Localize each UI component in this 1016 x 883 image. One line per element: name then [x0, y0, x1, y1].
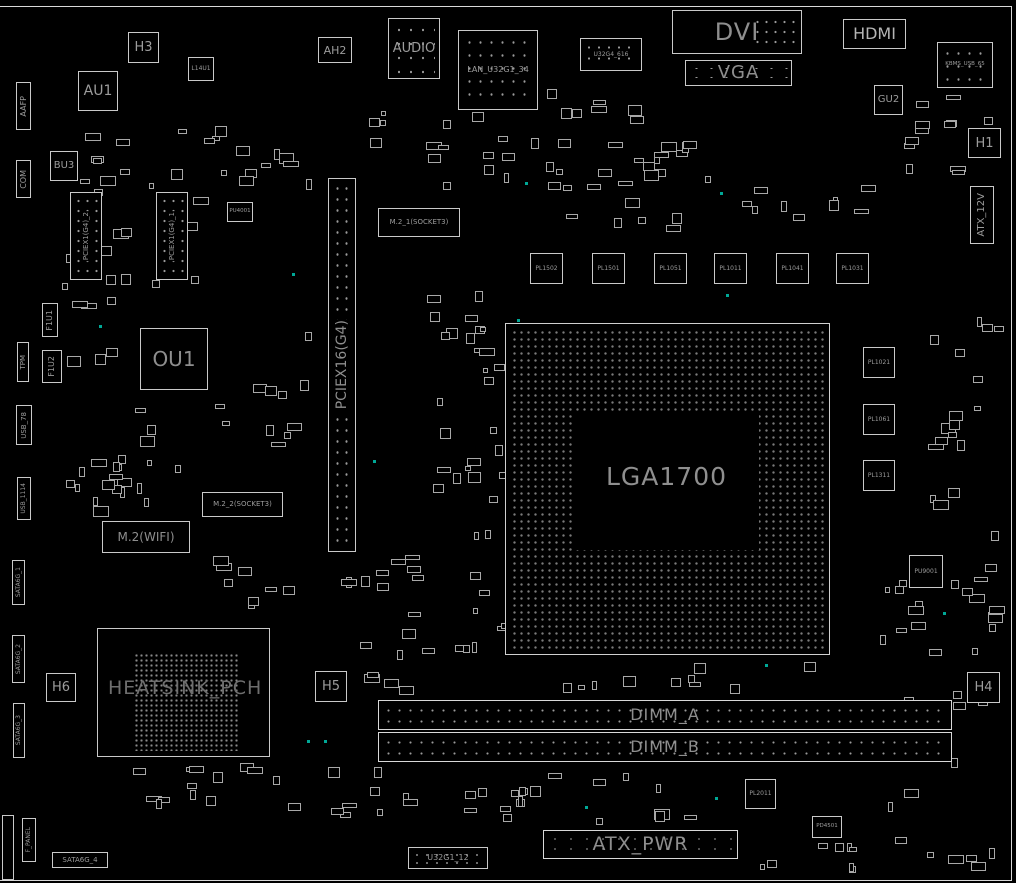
- chip-pu9001: PU9001: [909, 555, 943, 588]
- passive-component: [948, 488, 960, 498]
- board-edge-top: [0, 6, 1011, 7]
- passive-component: [730, 684, 740, 694]
- passive-component: [955, 349, 965, 357]
- passive-component: [672, 213, 682, 224]
- dvi-connector: DVI: [672, 10, 802, 54]
- passive-component: [479, 590, 490, 596]
- passive-component: [908, 606, 924, 615]
- test-point: [726, 294, 729, 297]
- passive-component: [306, 179, 312, 190]
- passive-component: [213, 556, 229, 566]
- atx-12v-connector: ATX_12V: [970, 186, 994, 244]
- m2-slot-2: M.2_2(SOCKET3): [202, 492, 283, 517]
- passive-component: [957, 440, 965, 451]
- usb-78-header: USB_78: [16, 405, 32, 445]
- chip-ah2: AH2: [318, 37, 352, 63]
- passive-component: [895, 586, 904, 594]
- passive-component: [407, 566, 421, 573]
- passive-component: [466, 333, 475, 344]
- passive-component: [930, 335, 939, 345]
- passive-component: [683, 141, 697, 149]
- passive-component: [767, 860, 777, 868]
- passive-component: [472, 112, 484, 122]
- passive-component: [405, 555, 420, 560]
- passive-component: [101, 246, 112, 256]
- passive-component: [623, 676, 636, 687]
- passive-component: [991, 531, 999, 541]
- passive-component: [465, 791, 476, 799]
- passive-component: [206, 796, 216, 806]
- passive-component: [994, 326, 1004, 332]
- passive-component: [973, 376, 983, 383]
- passive-component: [944, 121, 956, 128]
- passive-component: [152, 280, 160, 288]
- usb-1114-header: USB_1114: [17, 477, 31, 520]
- chip-pd4501: PD4501: [812, 816, 842, 838]
- motherboard-boardview-diagram: AUDIO LAN_U32G1_34 U32G4_616 DVI VGA HDM…: [0, 0, 1016, 883]
- passive-component: [530, 786, 541, 797]
- inductor-pl1041: PL1041: [776, 253, 809, 284]
- passive-component: [927, 852, 934, 858]
- passive-component: [463, 645, 470, 653]
- passive-component: [266, 425, 274, 436]
- passive-component: [287, 423, 302, 431]
- cpu-socket-label: LGA1700: [606, 464, 727, 489]
- passive-component: [149, 183, 154, 189]
- passive-component: [221, 170, 227, 176]
- board-edge-right: [1011, 6, 1012, 881]
- passive-component: [213, 772, 223, 783]
- passive-component: [72, 301, 88, 308]
- passive-component: [625, 198, 640, 208]
- passive-component: [494, 364, 505, 371]
- passive-component: [367, 672, 379, 678]
- passive-component: [204, 138, 215, 144]
- passive-component: [896, 628, 907, 633]
- passive-component: [474, 532, 479, 540]
- passive-component: [618, 181, 633, 186]
- board-edge-bottom: [0, 880, 1012, 881]
- passive-component: [376, 570, 389, 576]
- passive-component: [464, 808, 477, 813]
- passive-component: [503, 814, 512, 822]
- pch-heatsink: HEATSINK_PCH: [97, 628, 270, 757]
- inductor-pl1502: PL1502: [530, 253, 563, 284]
- passive-component: [361, 576, 370, 587]
- passive-component: [502, 153, 515, 161]
- passive-component: [397, 650, 403, 660]
- passive-component: [781, 201, 787, 212]
- passive-component: [666, 225, 681, 232]
- passive-component: [438, 145, 449, 150]
- passive-component: [656, 784, 661, 793]
- passive-component: [946, 95, 961, 100]
- test-point: [517, 319, 520, 322]
- passive-component: [484, 377, 494, 385]
- m2-slot-1: M.2_1(SOCKET3): [378, 208, 460, 237]
- passive-component: [661, 142, 677, 152]
- passive-component: [572, 109, 582, 118]
- passive-component: [951, 580, 959, 589]
- inductor-pl1311: PL1311: [863, 460, 895, 491]
- passive-component: [974, 577, 988, 582]
- passive-component: [470, 572, 481, 580]
- test-point: [585, 806, 588, 809]
- usb-header-top: U32G4_616: [580, 38, 642, 71]
- passive-component: [916, 101, 929, 108]
- passive-component: [222, 421, 230, 426]
- passive-component: [490, 427, 497, 434]
- passive-component: [949, 420, 960, 430]
- passive-component: [548, 182, 561, 190]
- passive-component: [818, 843, 828, 849]
- passive-component: [563, 185, 572, 191]
- test-point: [373, 460, 376, 463]
- passive-component: [412, 575, 424, 581]
- passive-component: [399, 686, 414, 695]
- passive-component: [171, 169, 183, 180]
- passive-component: [453, 473, 461, 484]
- chip-h3: H3: [128, 32, 159, 63]
- passive-component: [495, 445, 503, 456]
- passive-component: [441, 332, 450, 340]
- passive-component: [116, 139, 130, 146]
- inductor-pl1051: PL1051: [654, 253, 687, 284]
- passive-component: [215, 126, 227, 137]
- passive-component: [265, 386, 277, 396]
- passive-component: [982, 324, 993, 332]
- passive-component: [93, 158, 102, 164]
- passive-component: [689, 682, 701, 687]
- passive-component: [556, 169, 563, 175]
- passive-component: [804, 662, 816, 672]
- passive-component: [377, 809, 383, 816]
- passive-component: [614, 218, 622, 228]
- passive-component: [106, 348, 118, 357]
- passive-component: [489, 496, 498, 503]
- passive-component: [915, 121, 930, 129]
- usb3-front-header: U32G1_12: [408, 847, 488, 869]
- passive-component: [684, 815, 697, 820]
- passive-component: [341, 579, 357, 586]
- passive-component: [360, 642, 372, 649]
- passive-component: [238, 567, 252, 576]
- passive-component: [966, 855, 977, 862]
- passive-component: [135, 408, 146, 413]
- inductor-pl1031: PL1031: [836, 253, 869, 284]
- passive-component: [519, 787, 526, 796]
- passive-component: [156, 799, 162, 809]
- passive-component: [79, 467, 85, 477]
- passive-component: [93, 497, 98, 506]
- pch-bga: [134, 653, 238, 751]
- passive-component: [475, 291, 483, 302]
- passive-component: [93, 506, 109, 517]
- chip-bu3: BU3: [50, 151, 78, 181]
- passive-component: [443, 182, 451, 190]
- passive-component: [374, 767, 382, 778]
- passive-component: [107, 297, 116, 305]
- passive-component: [628, 105, 642, 116]
- passive-component: [905, 137, 919, 145]
- passive-component: [904, 789, 919, 798]
- passive-component: [563, 683, 572, 693]
- passive-component: [215, 404, 225, 409]
- passive-component: [113, 462, 120, 472]
- passive-component: [248, 597, 259, 606]
- passive-component: [480, 327, 486, 332]
- passive-component: [688, 675, 695, 683]
- atx-pwr-connector: ATX_PWR: [543, 830, 738, 859]
- passive-component: [849, 847, 857, 852]
- passive-component: [849, 863, 854, 872]
- passive-component: [558, 139, 571, 148]
- lan-usb-connector: LAN_U32G1_34: [458, 30, 538, 110]
- passive-component: [479, 348, 495, 356]
- passive-component: [468, 472, 481, 483]
- test-point: [307, 740, 310, 743]
- passive-component: [144, 498, 149, 507]
- passive-component: [754, 187, 768, 194]
- passive-component: [854, 209, 869, 214]
- test-point: [720, 192, 723, 195]
- passive-component: [634, 158, 644, 163]
- passive-component: [885, 587, 890, 593]
- passive-component: [566, 214, 578, 219]
- passive-component: [906, 164, 913, 174]
- passive-component: [271, 442, 286, 447]
- passive-component: [861, 185, 876, 192]
- passive-component: [984, 117, 993, 125]
- inductor-pl1021: PL1021: [863, 347, 895, 378]
- inductor-pl1061: PL1061: [863, 404, 895, 435]
- passive-component: [247, 767, 263, 774]
- sata6g-2-connector: SATA6G_2: [12, 635, 25, 683]
- test-point: [292, 273, 295, 276]
- passive-component: [147, 425, 156, 435]
- passive-component: [742, 201, 752, 207]
- passive-component: [95, 354, 106, 365]
- passive-component: [465, 315, 478, 322]
- passive-component: [935, 437, 948, 445]
- passive-component: [193, 197, 209, 205]
- passive-component: [283, 586, 295, 595]
- aafp-header: AAFP: [16, 82, 31, 130]
- passive-component: [483, 368, 488, 373]
- inductor-pl1011: PL1011: [714, 253, 747, 284]
- passive-component: [147, 460, 152, 466]
- chip-gu2: GU2: [874, 85, 903, 115]
- passive-component: [236, 146, 250, 156]
- passive-component: [531, 138, 539, 149]
- passive-component: [989, 606, 1005, 614]
- passive-component: [300, 380, 309, 391]
- cpu-socket: LGA1700: [505, 323, 830, 655]
- passive-component: [437, 398, 443, 406]
- test-point: [765, 664, 768, 667]
- passive-component: [952, 170, 965, 175]
- passive-component: [377, 583, 389, 591]
- passive-component: [402, 629, 416, 639]
- passive-component: [224, 579, 233, 587]
- passive-component: [85, 133, 101, 141]
- passive-component: [760, 864, 765, 870]
- passive-component: [972, 648, 978, 655]
- passive-component: [895, 837, 907, 844]
- pciex16-slot: PCIEX16(G4): [328, 178, 356, 552]
- passive-component: [239, 176, 254, 186]
- passive-component: [546, 162, 554, 172]
- passive-component: [933, 500, 949, 510]
- passive-component: [880, 635, 886, 645]
- passive-component: [106, 275, 116, 285]
- passive-component: [408, 612, 421, 617]
- passive-component: [284, 432, 291, 439]
- passive-component: [133, 768, 146, 775]
- passive-component: [189, 766, 204, 773]
- passive-component: [273, 776, 280, 785]
- cpu-socket-cavity: LGA1700: [572, 412, 759, 550]
- passive-component: [974, 406, 981, 411]
- vga-connector: VGA: [685, 60, 792, 86]
- passive-component: [971, 862, 986, 871]
- m2-wifi-slot: M.2(WIFI): [102, 521, 190, 553]
- hdmi-label: HDMI: [853, 26, 896, 42]
- passive-component: [109, 474, 123, 480]
- passive-component: [121, 274, 131, 285]
- passive-component: [137, 483, 142, 494]
- passive-component: [929, 649, 942, 656]
- passive-component: [548, 773, 562, 779]
- passive-component: [953, 691, 962, 699]
- passive-component: [274, 149, 280, 160]
- kbms-usb-connector: KBMS_USB_65: [937, 42, 993, 88]
- passive-component: [705, 176, 711, 183]
- passive-component: [484, 165, 494, 175]
- test-point: [943, 612, 946, 615]
- passive-component: [596, 818, 603, 825]
- passive-component: [623, 773, 629, 781]
- passive-component: [547, 89, 557, 99]
- tpm-header: TPM: [17, 342, 29, 382]
- sata6g-3-connector: SATA6G_3: [13, 703, 25, 758]
- chip-h6: H6: [46, 673, 76, 702]
- passive-component: [928, 444, 944, 450]
- passive-component: [473, 608, 478, 614]
- chip-f1u2: F1U2: [42, 350, 62, 383]
- passive-component: [403, 799, 418, 806]
- passive-component: [592, 681, 597, 690]
- passive-component: [120, 169, 130, 175]
- chip-l14u1: L14U1: [188, 57, 214, 81]
- passive-component: [472, 642, 477, 653]
- passive-component: [518, 796, 523, 807]
- passive-component: [178, 129, 187, 134]
- passive-component: [962, 588, 973, 596]
- passive-component: [485, 530, 491, 539]
- passive-component: [370, 138, 382, 148]
- passive-component: [504, 173, 509, 183]
- chip-pu4001: PU4001: [227, 202, 253, 222]
- passive-component: [498, 136, 508, 142]
- passive-component: [191, 276, 199, 284]
- chip-au1: AU1: [78, 71, 118, 111]
- test-point: [99, 325, 102, 328]
- test-point: [324, 740, 327, 743]
- passive-component: [369, 118, 380, 127]
- passive-component: [985, 564, 997, 572]
- passive-component: [391, 559, 406, 565]
- passive-component: [989, 848, 995, 859]
- audio-connector: AUDIO: [388, 18, 440, 79]
- passive-component: [62, 283, 68, 290]
- inductor-pl2011: PL2011: [745, 779, 776, 809]
- passive-component: [644, 170, 659, 181]
- edge-header: [2, 815, 14, 880]
- passive-component: [342, 803, 357, 808]
- passive-component: [655, 811, 665, 822]
- passive-component: [190, 790, 196, 800]
- passive-component: [121, 228, 132, 237]
- passive-component: [384, 679, 399, 688]
- passive-component: [80, 179, 90, 184]
- chip-ou1: OU1: [140, 328, 208, 390]
- passive-component: [427, 295, 441, 303]
- passive-component: [638, 217, 646, 224]
- passive-component: [140, 436, 155, 447]
- passive-component: [500, 806, 511, 812]
- passive-component: [67, 356, 81, 367]
- test-point: [715, 797, 718, 800]
- passive-component: [261, 163, 271, 168]
- passive-component: [100, 176, 116, 186]
- passive-component: [948, 855, 964, 864]
- passive-component: [91, 459, 107, 467]
- sata6g-4-connector: SATA6G_4: [52, 852, 108, 868]
- f-panel-header: F_PANEL: [22, 818, 36, 862]
- passive-component: [440, 428, 451, 439]
- passive-component: [305, 332, 312, 341]
- passive-component: [988, 614, 1003, 623]
- passive-component: [654, 152, 669, 158]
- passive-component: [593, 100, 606, 105]
- passive-component: [437, 467, 451, 473]
- test-point: [525, 182, 528, 185]
- passive-component: [175, 465, 181, 473]
- hdmi-connector: HDMI: [843, 19, 906, 49]
- passive-component: [793, 214, 805, 221]
- passive-component: [428, 154, 441, 163]
- passive-component: [422, 648, 435, 654]
- dimm-slot-b: DIMM_B: [378, 732, 952, 762]
- sata6g-1-connector: SATA6G_1: [12, 560, 25, 605]
- passive-component: [989, 624, 996, 632]
- pciex1-slot-2: PCIEX1(G4)_2: [70, 192, 102, 280]
- passive-component: [328, 767, 340, 778]
- passive-component: [598, 169, 612, 177]
- passive-component: [66, 480, 75, 488]
- passive-component: [829, 200, 839, 211]
- passive-component: [752, 206, 758, 214]
- passive-component: [591, 106, 607, 113]
- inductor-pl1501: PL1501: [592, 253, 625, 284]
- passive-component: [888, 802, 893, 812]
- com-header: COM: [16, 160, 31, 198]
- chip-h5: H5: [315, 671, 347, 702]
- passive-component: [443, 120, 451, 129]
- passive-component: [911, 622, 926, 630]
- passive-component: [283, 161, 299, 167]
